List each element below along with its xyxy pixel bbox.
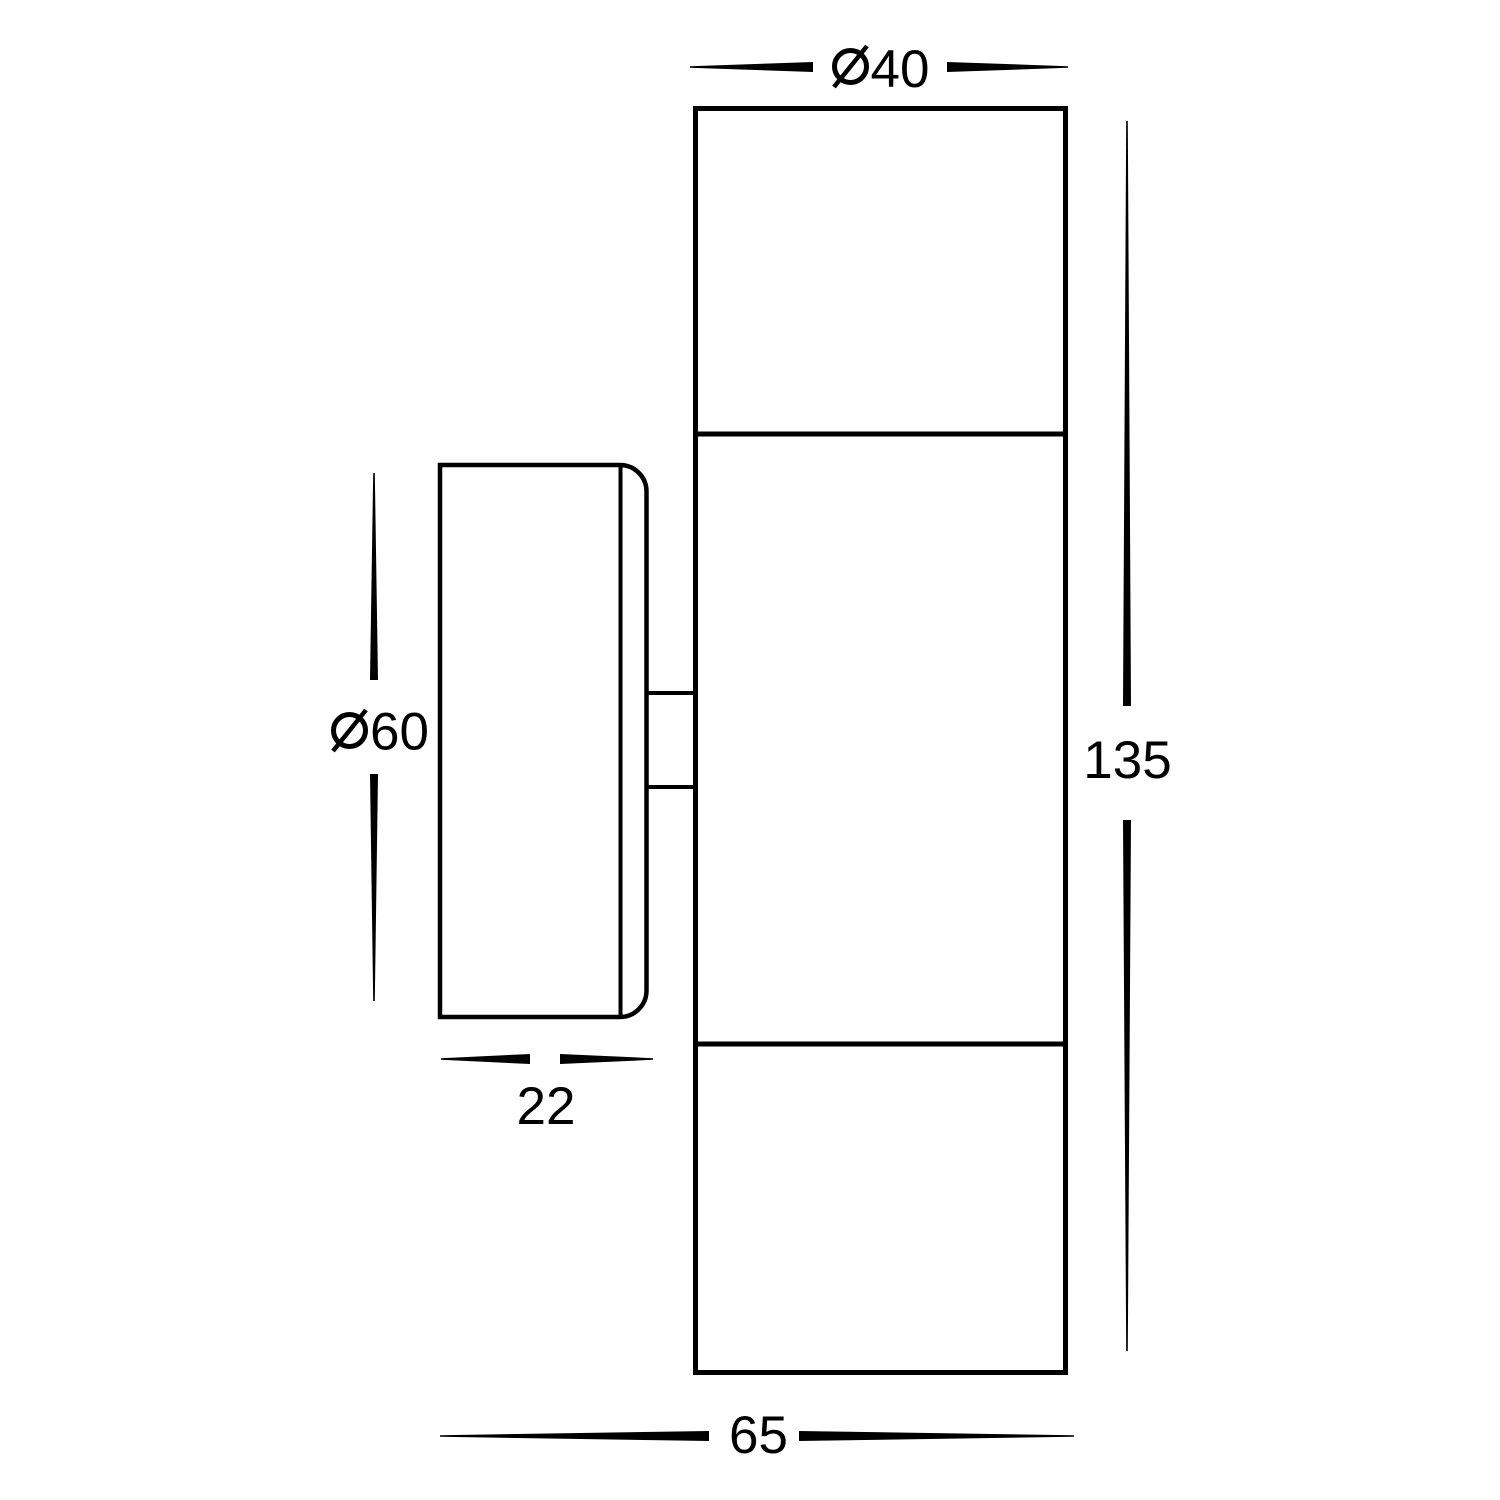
- svg-text:65: 65: [729, 1406, 788, 1465]
- svg-text:22: 22: [517, 1077, 576, 1136]
- svg-text:135: 135: [1083, 731, 1171, 790]
- svg-text:40: 40: [871, 40, 930, 99]
- svg-text:60: 60: [370, 703, 429, 762]
